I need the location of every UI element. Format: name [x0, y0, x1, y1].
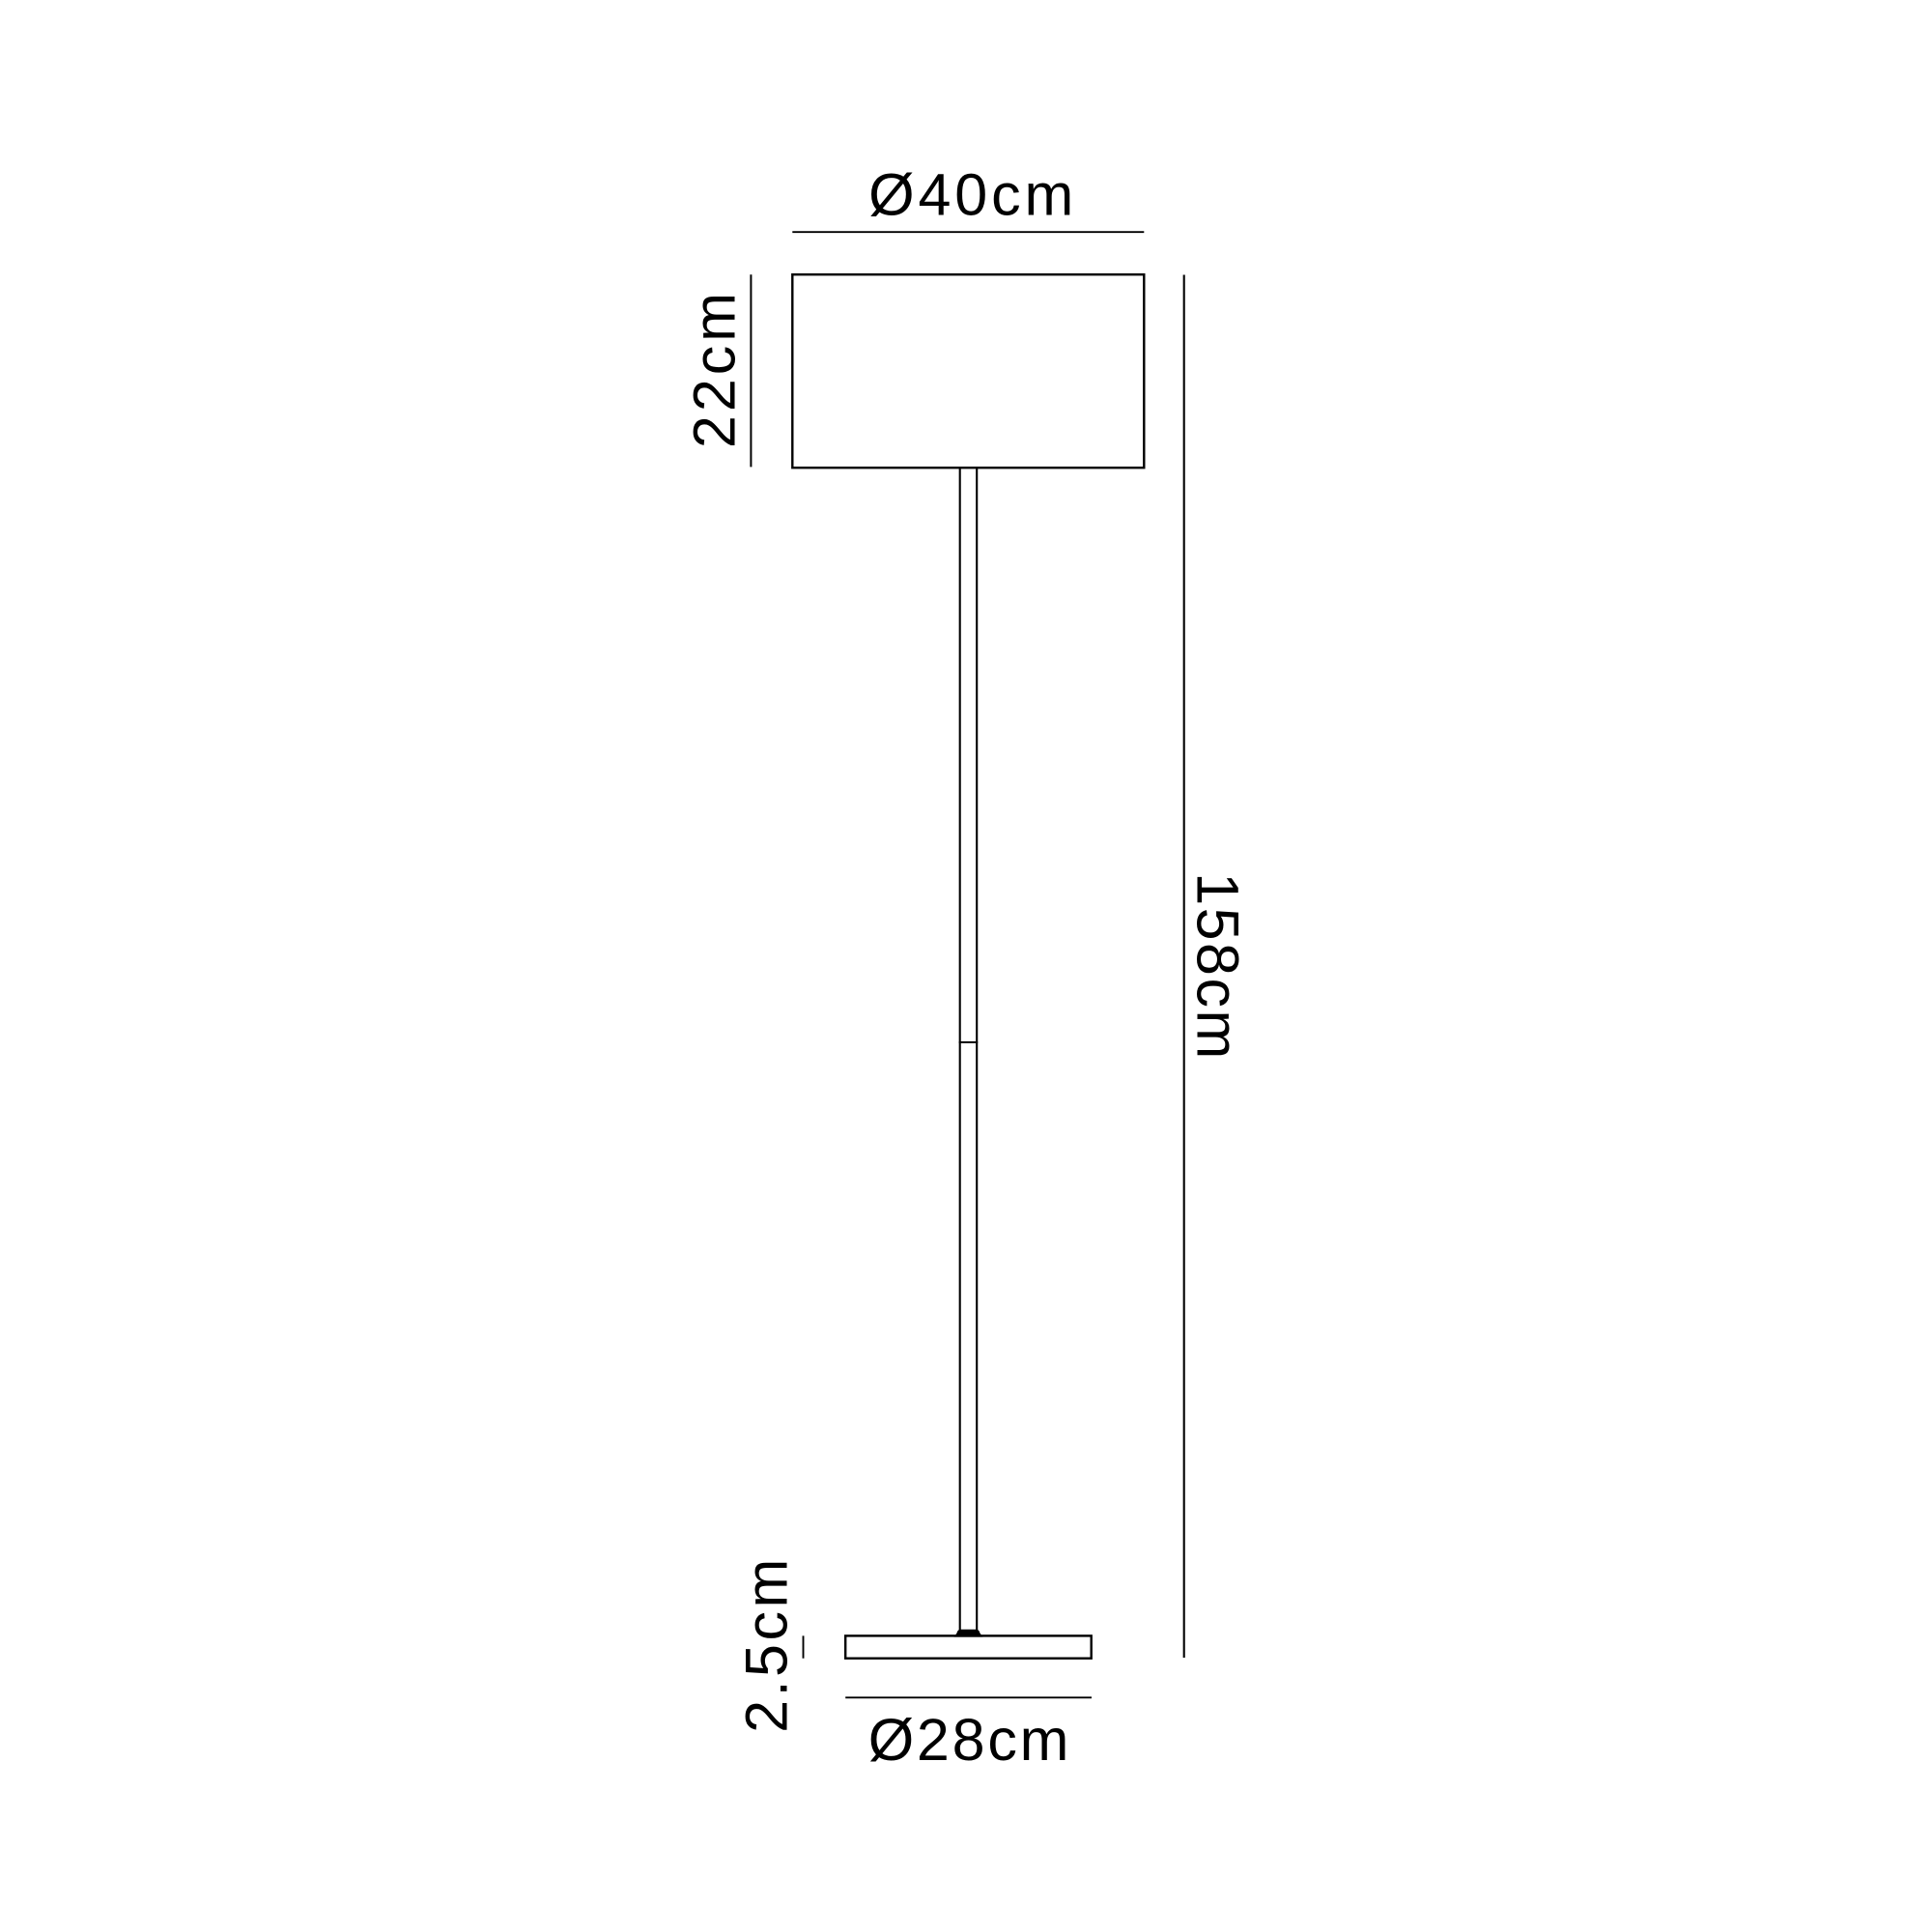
- svg-text:22cm: 22cm: [682, 289, 748, 448]
- svg-text:2.5cm: 2.5cm: [734, 1555, 800, 1733]
- svg-text:Ø28cm: Ø28cm: [868, 1707, 1072, 1773]
- svg-text:158cm: 158cm: [1185, 872, 1251, 1062]
- svg-text:Ø40cm: Ø40cm: [868, 162, 1077, 228]
